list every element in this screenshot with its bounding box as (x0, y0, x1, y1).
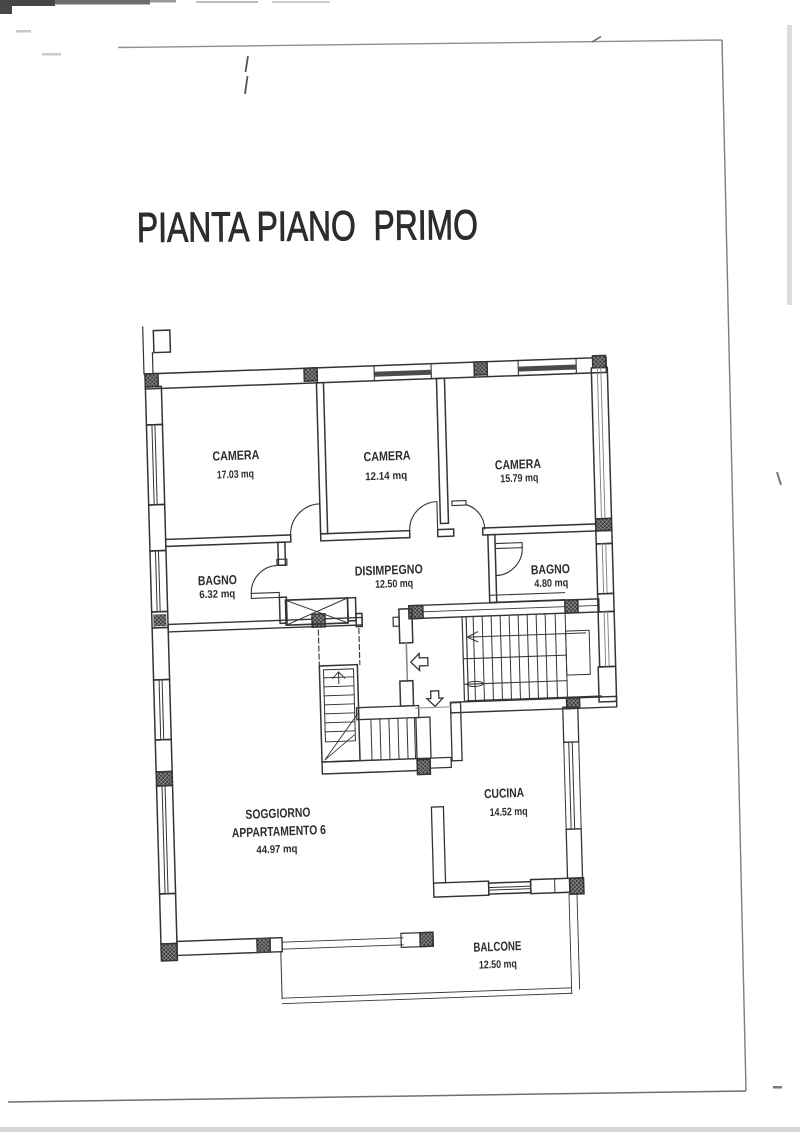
svg-text:BAGNO: BAGNO (198, 572, 237, 588)
svg-text:BALCONE: BALCONE (473, 938, 522, 955)
svg-text:44.97 mq: 44.97 mq (256, 843, 297, 856)
svg-text:DISIMPEGNO: DISIMPEGNO (355, 561, 423, 578)
svg-text:CAMERA: CAMERA (212, 447, 260, 464)
svg-text:CAMERA: CAMERA (363, 448, 411, 465)
svg-text:BAGNO: BAGNO (531, 561, 570, 577)
svg-text:CAMERA: CAMERA (495, 456, 542, 473)
svg-text:12.14 mq: 12.14 mq (365, 470, 407, 484)
svg-text:12.50 mq: 12.50 mq (375, 578, 413, 591)
svg-text:6.32 mq: 6.32 mq (199, 588, 235, 601)
svg-text:4.80 mq: 4.80 mq (534, 577, 568, 590)
svg-text:15.79 mq: 15.79 mq (500, 472, 538, 485)
svg-text:12.50 mq: 12.50 mq (479, 958, 517, 971)
svg-text:SOGGIORNO: SOGGIORNO (245, 804, 310, 821)
svg-text:17.03 mq: 17.03 mq (217, 468, 254, 481)
svg-text:PIANTA PIANO PRIMO: PIANTA PIANO PRIMO (137, 201, 478, 251)
svg-text:CUCINA: CUCINA (484, 785, 525, 801)
svg-text:14.52 mq: 14.52 mq (489, 806, 527, 819)
svg-text:APPARTAMENTO 6: APPARTAMENTO 6 (232, 822, 326, 840)
